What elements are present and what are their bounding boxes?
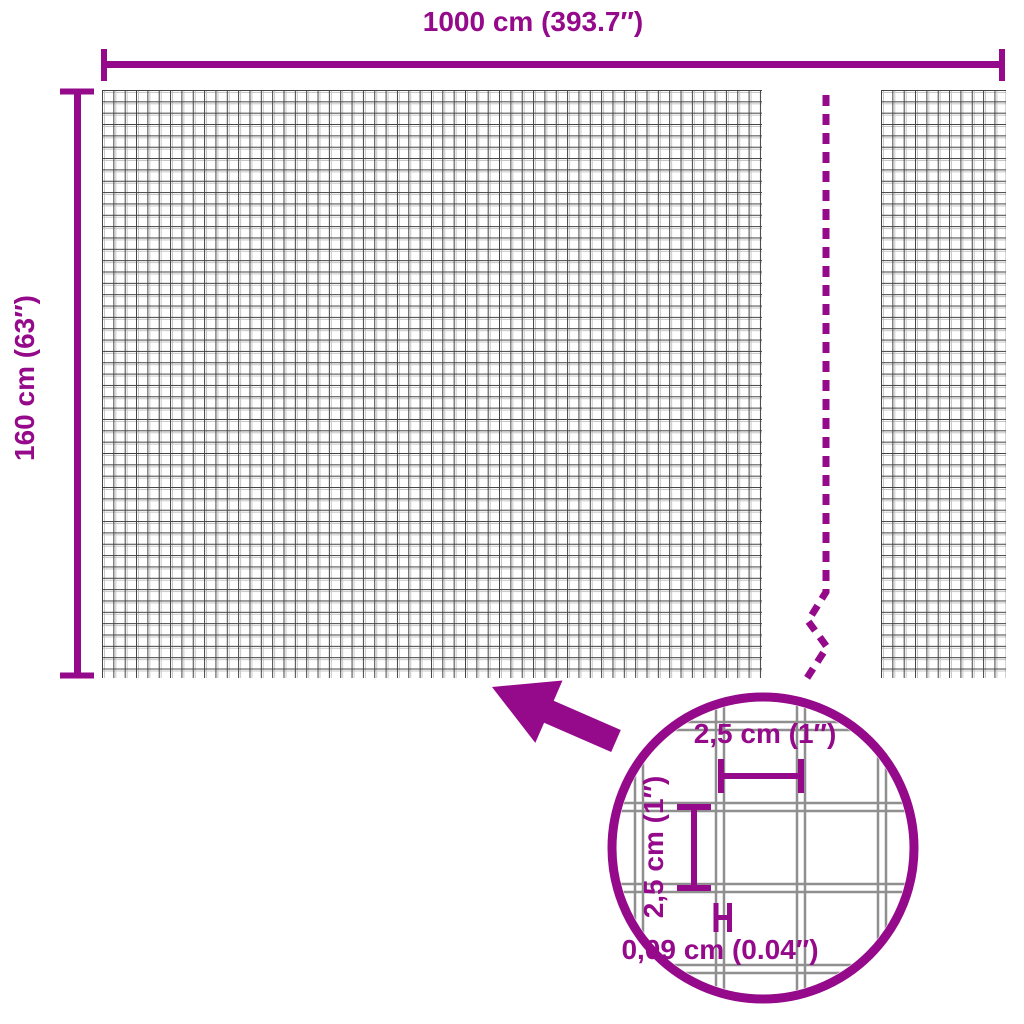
- magnifier-arrow-icon: [492, 681, 621, 753]
- break-dashed-line: [807, 95, 827, 678]
- cell-width-label: 2,5 cm (1″): [694, 720, 837, 748]
- wire-thickness-label: 0,09 cm (0.04″): [621, 936, 818, 964]
- height-dimension-label: 160 cm (63″): [11, 295, 39, 461]
- width-dimension-line: [104, 49, 1002, 81]
- height-dimension-line: [60, 91, 94, 676]
- cell-height-label: 2,5 cm (1″): [640, 776, 668, 919]
- width-dimension-label: 1000 cm (393.7″): [423, 8, 643, 36]
- diagram-overlay: [0, 0, 1024, 1024]
- wire-mesh-dimension-diagram: 1000 cm (393.7″) 160 cm (63″) 2,5 cm (1″…: [0, 0, 1024, 1024]
